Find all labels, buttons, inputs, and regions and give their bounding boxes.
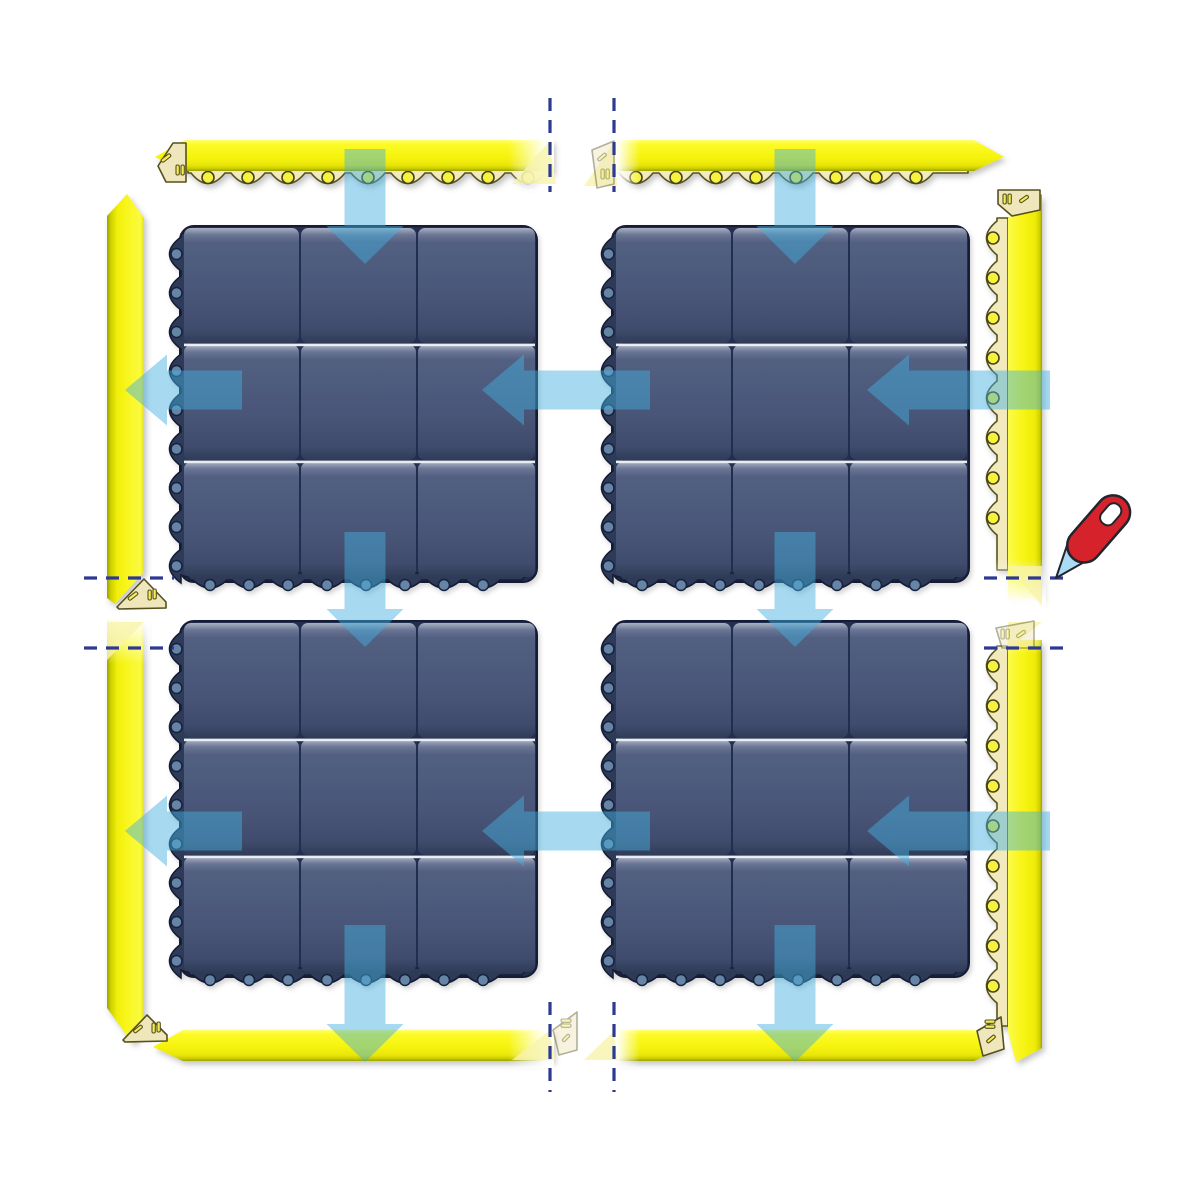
product-illustration	[0, 0, 1200, 1200]
corner-cap-bottom-right	[977, 1017, 1004, 1056]
corner-cap-right-top	[998, 190, 1040, 216]
ramp-right-lower	[987, 640, 1043, 1062]
corner-cap-top-left	[158, 143, 186, 182]
corner-cap-bottom-middle	[553, 1012, 577, 1055]
diagram-canvas	[0, 0, 1200, 1200]
corner-cap-top-middle	[592, 141, 614, 188]
utility-knife-icon	[1043, 488, 1137, 589]
